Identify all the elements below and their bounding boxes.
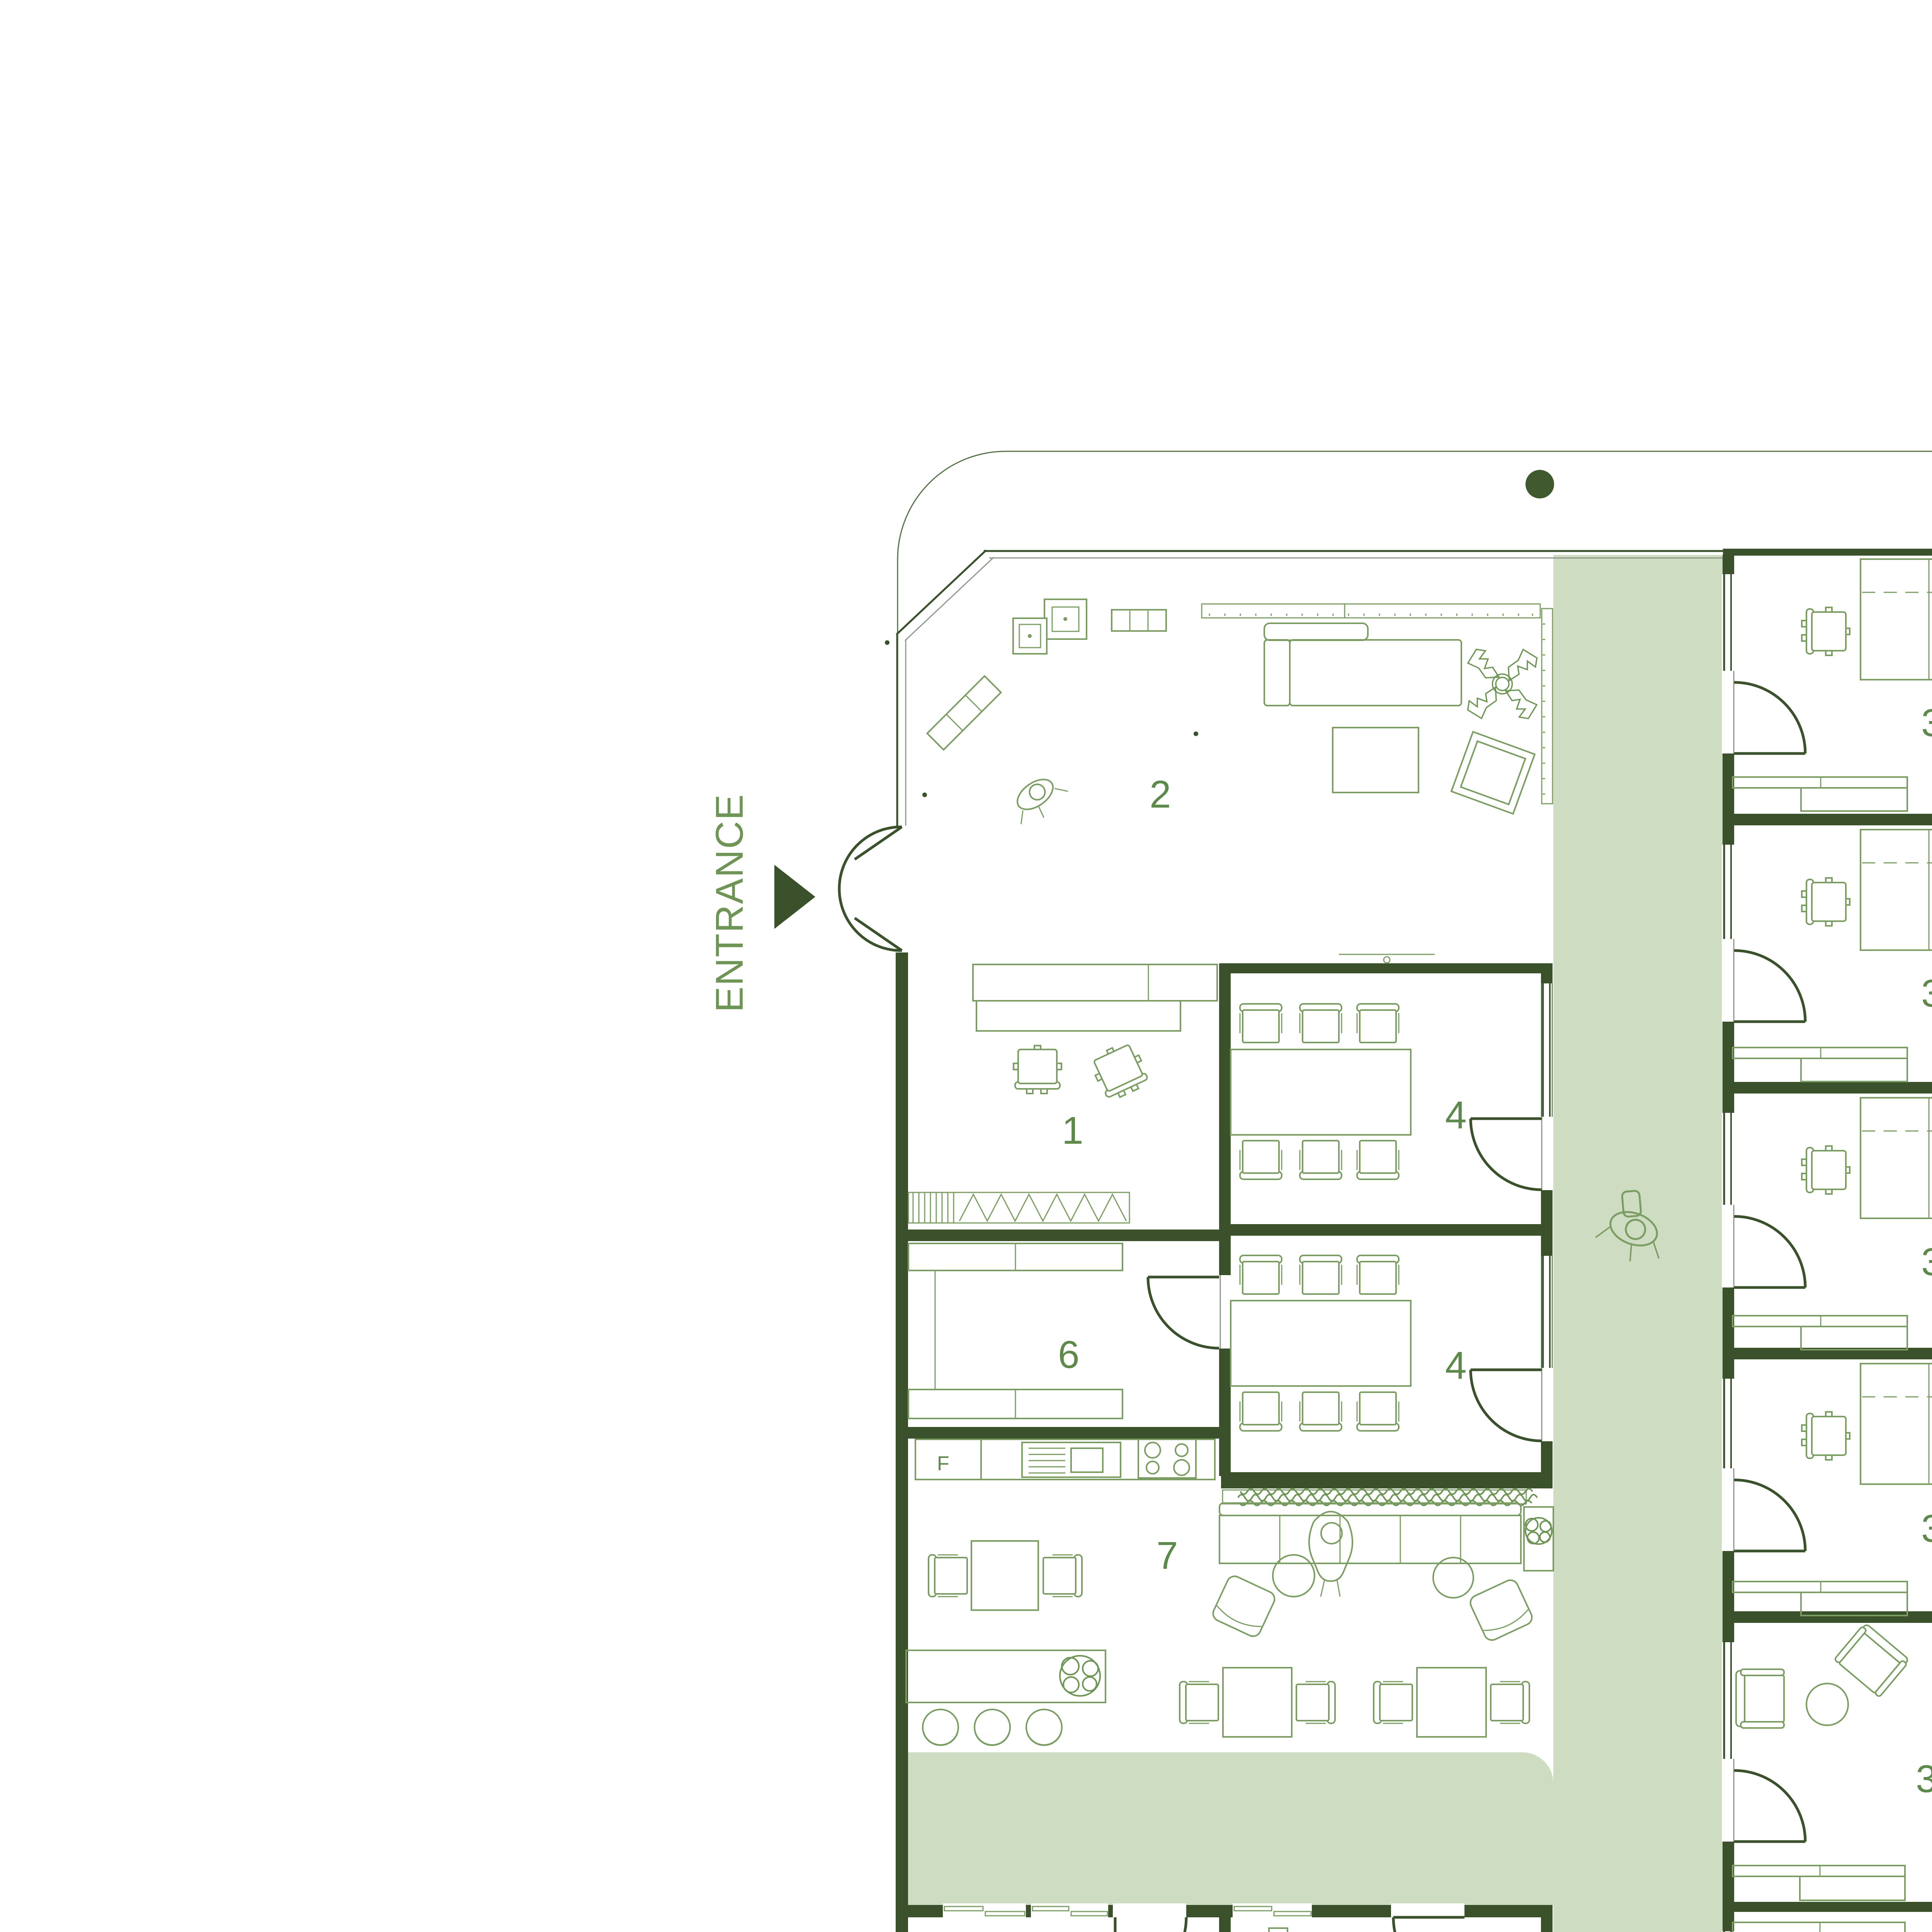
svg-text:3: 3 bbox=[1916, 1757, 1932, 1801]
svg-text:ENTRANCE: ENTRANCE bbox=[708, 794, 751, 1012]
svg-text:7: 7 bbox=[1156, 1534, 1178, 1577]
svg-text:1: 1 bbox=[1062, 1109, 1083, 1152]
svg-text:F: F bbox=[937, 1452, 949, 1475]
svg-text:3: 3 bbox=[1921, 972, 1932, 1015]
svg-text:4: 4 bbox=[1445, 1344, 1467, 1387]
svg-text:6: 6 bbox=[1058, 1333, 1080, 1376]
svg-text:3: 3 bbox=[1921, 1507, 1932, 1550]
svg-text:3: 3 bbox=[1921, 1240, 1932, 1284]
svg-text:4: 4 bbox=[1445, 1094, 1467, 1137]
svg-text:3: 3 bbox=[1921, 701, 1932, 745]
svg-text:2: 2 bbox=[1150, 773, 1171, 816]
